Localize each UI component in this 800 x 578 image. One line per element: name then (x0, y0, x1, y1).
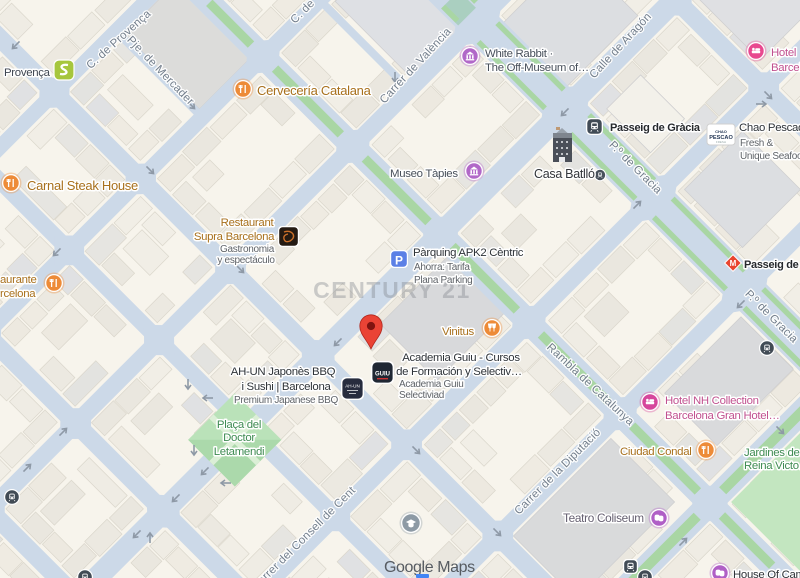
svg-text:Chao Pescao: Chao Pescao (739, 122, 800, 134)
svg-text:Academia Guiu - Cursos: Academia Guiu - Cursos (402, 352, 520, 364)
svg-text:Hotel: Hotel (771, 47, 796, 59)
svg-text:rcelona: rcelona (0, 288, 36, 300)
svg-text:i Sushi | Barcelona: i Sushi | Barcelona (241, 381, 331, 393)
svg-text:Selectiviad: Selectiviad (399, 390, 444, 401)
svg-text:Doctor: Doctor (223, 432, 255, 444)
svg-text:Gastronomia: Gastronomia (220, 244, 275, 255)
svg-text:FRESH: FRESH (716, 140, 726, 144)
svg-text:Supra Barcelona: Supra Barcelona (194, 231, 275, 243)
svg-text:Plana Parking: Plana Parking (414, 275, 472, 286)
svg-text:Google Maps: Google Maps (384, 559, 475, 576)
svg-text:Premium Japanese BBQ: Premium Japanese BBQ (234, 395, 339, 406)
svg-text:Provença: Provença (4, 67, 51, 79)
svg-text:White Rabbit ·: White Rabbit · (485, 48, 553, 60)
svg-text:Plaça del: Plaça del (217, 419, 261, 431)
svg-text:House Of Cam…: House Of Cam… (733, 569, 800, 578)
svg-text:Fresh &: Fresh & (740, 138, 774, 149)
svg-text:aurante: aurante (0, 274, 37, 286)
svg-text:M: M (730, 259, 737, 268)
svg-text:Letamendi: Letamendi (214, 446, 265, 458)
svg-text:Ahorra: Tarifa: Ahorra: Tarifa (414, 262, 470, 273)
svg-text:Teatro Coliseum: Teatro Coliseum (563, 511, 644, 525)
svg-text:GUIU: GUIU (375, 372, 390, 378)
svg-text:Reina Victo…: Reina Victo… (744, 460, 800, 472)
svg-text:y espectáculo: y espectáculo (217, 255, 275, 266)
svg-text:Casa Batlló: Casa Batlló (534, 167, 595, 181)
svg-text:Passeig de Grà: Passeig de Grà (744, 259, 800, 271)
svg-text:Museo Tàpies: Museo Tàpies (390, 168, 458, 180)
svg-text:AH-UN Japonès BBQ: AH-UN Japonès BBQ (231, 366, 336, 378)
svg-text:AH-UN: AH-UN (345, 384, 360, 389)
svg-text:Hotel NH Collection: Hotel NH Collection (665, 395, 759, 407)
svg-text:Pàrquing APK2 Cèntric: Pàrquing APK2 Cèntric (413, 247, 524, 259)
svg-text:Carnal Steak House: Carnal Steak House (27, 178, 138, 193)
svg-text:CHAO: CHAO (715, 129, 727, 134)
svg-text:de Formación y Selectiv…: de Formación y Selectiv… (396, 366, 522, 378)
svg-text:P: P (395, 254, 403, 268)
svg-text:Barcel…: Barcel… (771, 62, 800, 74)
svg-text:Barcelona Gran Hotel…: Barcelona Gran Hotel… (665, 410, 780, 422)
svg-text:The Off-Museum of…: The Off-Museum of… (485, 62, 589, 74)
svg-text:Vinitus: Vinitus (442, 326, 474, 338)
svg-text:Academia Guiu: Academia Guiu (399, 379, 463, 390)
svg-text:Cervecería Catalana: Cervecería Catalana (257, 83, 372, 98)
svg-text:Passeig de Gràcia: Passeig de Gràcia (610, 122, 701, 134)
svg-text:Unique Seafood: Unique Seafood (740, 151, 800, 162)
svg-text:Restaurant: Restaurant (221, 217, 275, 229)
svg-text:Ciudad Condal: Ciudad Condal (620, 446, 691, 458)
svg-text:Jardines de: Jardines de (744, 447, 800, 459)
